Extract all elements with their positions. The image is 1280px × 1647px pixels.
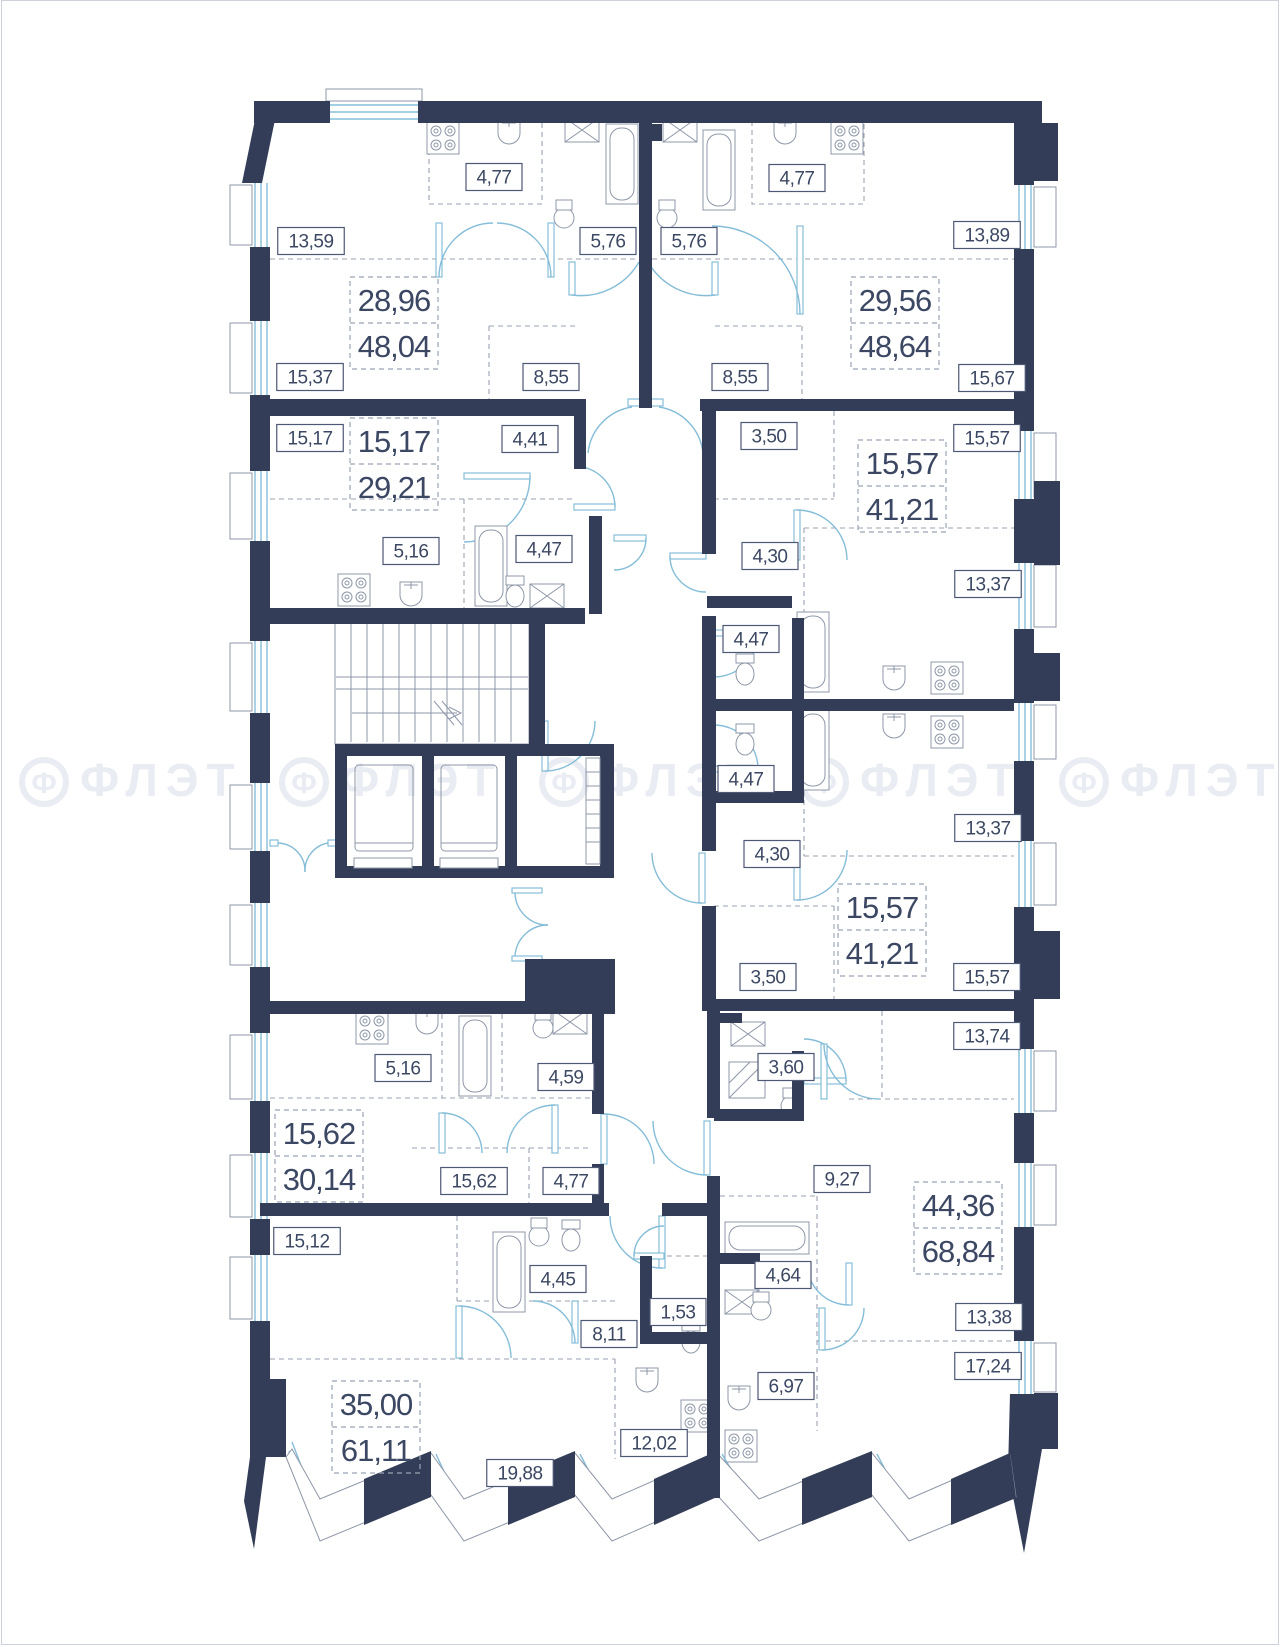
bathtub-icon	[703, 130, 735, 210]
room-area-label: 15,17	[277, 425, 344, 452]
room-area-value: 3,50	[751, 968, 786, 989]
room-area-value: 6,97	[769, 1377, 804, 1398]
window-sill	[1034, 1343, 1056, 1392]
room-area-label: 13,38	[956, 1304, 1023, 1331]
room-area-value: 8,55	[723, 368, 758, 389]
apartment-total-area: 41,21	[846, 936, 919, 971]
watermark-text: ФЛЭТ	[1120, 754, 1280, 806]
apartment-living-area: 35,00	[340, 1387, 413, 1422]
room-area-value: 4,77	[554, 1172, 589, 1193]
room-area-label: 9,27	[814, 1166, 870, 1193]
apartment-total-area: 48,04	[358, 329, 431, 364]
room-area-value: 8,11	[592, 1325, 626, 1346]
window-sill	[1034, 1165, 1056, 1225]
room-area-label: 15,62	[441, 1168, 508, 1195]
room-area-label: 4,77	[543, 1168, 599, 1195]
room-area-value: 13,74	[964, 1027, 1010, 1048]
apartment-label: 35,0061,11	[332, 1381, 420, 1473]
room-area-value: 5,76	[672, 232, 707, 253]
stove-icon	[725, 1430, 757, 1462]
window-sill	[230, 185, 252, 245]
room-area-label: 4,59	[538, 1064, 594, 1091]
room-area-value: 17,24	[965, 1357, 1011, 1378]
basin-icon	[529, 1218, 549, 1246]
bathtub-icon	[459, 1016, 491, 1096]
sink-icon	[636, 1368, 658, 1392]
bathtub-icon	[606, 124, 638, 204]
room-area-value: 4,64	[766, 1266, 802, 1287]
apartment-label: 15,5741,21	[858, 440, 946, 532]
room-area-label: 4,77	[466, 164, 522, 191]
room-area-value: 13,38	[966, 1308, 1011, 1329]
floor-plan-drawing: ФФЛЭТФФЛЭТФФЛЭТФФЛЭТФФЛЭТ	[2, 1, 1280, 1646]
room-area-label: 13,37	[955, 571, 1022, 598]
room-area-label: 3,50	[740, 964, 796, 991]
room-area-label: 5,76	[661, 228, 717, 255]
window-sill	[1034, 565, 1056, 627]
room-area-label: 8,55	[712, 364, 768, 391]
room-area-label: 8,11	[581, 1321, 637, 1348]
room-area-value: 4,30	[753, 547, 788, 568]
sink-icon	[728, 1386, 750, 1410]
room-area-value: 3,60	[769, 1058, 804, 1079]
room-area-value: 4,59	[549, 1068, 584, 1089]
toilet-icon	[736, 654, 754, 685]
stove-icon	[931, 716, 963, 748]
apartment-living-area: 15,57	[846, 890, 919, 925]
window-sill	[326, 89, 422, 101]
stove-icon	[427, 122, 459, 154]
window-sill	[230, 323, 252, 393]
watermark: ФФЛЭТ	[282, 754, 503, 806]
room-area-value: 15,17	[287, 429, 332, 450]
apartment-label: 15,1729,21	[350, 418, 438, 510]
room-area-label: 4,47	[718, 766, 774, 793]
room-area-label: 15,67	[959, 365, 1026, 392]
service-ladder	[586, 758, 600, 864]
room-area-value: 13,89	[964, 226, 1009, 247]
room-area-label: 4,77	[769, 165, 825, 192]
watermark-logo-letter: Ф	[291, 767, 317, 800]
watermark-text: ФЛЭТ	[80, 754, 243, 806]
stove-icon	[356, 1012, 388, 1044]
room-area-label: 4,47	[516, 536, 572, 563]
stove-icon	[831, 122, 863, 154]
room-area-label: 5,76	[580, 228, 636, 255]
room-area-value: 4,30	[755, 845, 790, 866]
watermark-logo-letter: Ф	[551, 767, 577, 800]
room-area-value: 15,57	[964, 968, 1009, 989]
apartment-living-area: 15,62	[283, 1116, 356, 1151]
apartment-living-area: 15,17	[358, 424, 431, 459]
room-area-value: 4,45	[541, 1270, 576, 1291]
apartment-living-area: 44,36	[922, 1188, 995, 1223]
window-sill	[230, 1155, 252, 1217]
room-area-value: 4,47	[527, 540, 562, 561]
apartment-total-area: 30,14	[283, 1162, 356, 1197]
room-area-value: 4,77	[780, 169, 815, 190]
room-area-value: 15,57	[964, 429, 1009, 450]
sink-icon	[883, 714, 905, 738]
room-area-label: 3,60	[758, 1054, 814, 1081]
room-area-label: 15,37	[277, 364, 344, 391]
toilet-icon	[506, 576, 524, 607]
room-area-label: 8,55	[523, 364, 579, 391]
sink-icon	[498, 120, 520, 144]
toilet-icon	[562, 1220, 580, 1251]
bathtub-icon	[493, 1232, 525, 1312]
room-area-value: 15,62	[451, 1172, 496, 1193]
room-area-value: 12,02	[631, 1434, 676, 1455]
watermark-text: ФЛЭТ	[860, 754, 1023, 806]
apartment-living-area: 15,57	[866, 446, 939, 481]
apartment-living-area: 28,96	[358, 283, 431, 318]
window-sill	[230, 473, 252, 539]
watermark: ФФЛЭТ	[22, 754, 243, 806]
sink-icon	[883, 666, 905, 690]
room-area-value: 5,16	[394, 542, 429, 563]
bathtub-icon	[475, 526, 507, 606]
room-area-value: 4,77	[477, 168, 512, 189]
basin-icon	[554, 200, 574, 228]
room-area-value: 4,47	[734, 630, 769, 651]
toilet-icon	[736, 724, 754, 755]
room-area-value: 13,37	[965, 819, 1010, 840]
watermark-text: ФЛЭТ	[340, 754, 503, 806]
room-area-label: 15,57	[954, 964, 1021, 991]
room-area-value: 8,55	[534, 368, 569, 389]
watermark: ФФЛЭТ	[1062, 754, 1280, 806]
room-area-label: 6,97	[758, 1373, 814, 1400]
window-sill	[230, 643, 252, 711]
basin-icon	[657, 200, 677, 228]
window-sill	[1034, 1051, 1056, 1111]
window-sill	[1034, 843, 1056, 905]
sink-icon	[400, 582, 422, 606]
watermark-logo-letter: Ф	[1071, 767, 1097, 800]
room-area-value: 4,47	[729, 770, 764, 791]
apartment-label: 15,5741,21	[838, 884, 926, 976]
room-area-value: 15,67	[969, 369, 1014, 390]
room-area-label: 13,59	[278, 228, 345, 255]
room-area-label: 13,37	[955, 815, 1022, 842]
room-area-label: 12,02	[621, 1430, 688, 1457]
room-area-label: 13,74	[954, 1023, 1021, 1050]
room-area-label: 4,30	[742, 543, 798, 570]
room-area-label: 19,88	[487, 1460, 554, 1487]
apartment-total-area: 29,21	[358, 470, 431, 505]
room-area-label: 13,89	[954, 222, 1021, 249]
window-sill	[230, 1035, 252, 1099]
apartment-label: 44,3668,84	[914, 1182, 1002, 1274]
apartment-label: 15,6230,14	[275, 1110, 363, 1202]
window-sill	[1034, 187, 1056, 247]
watermark: ФФЛЭТ	[802, 754, 1023, 806]
room-area-value: 3,50	[752, 427, 787, 448]
stove-icon	[931, 662, 963, 694]
room-area-label: 5,16	[383, 538, 439, 565]
apartment-total-area: 48,64	[859, 329, 932, 364]
apartment-label: 29,5648,64	[851, 277, 939, 369]
room-area-value: 5,76	[591, 232, 626, 253]
room-area-label: 4,64	[755, 1262, 811, 1289]
floor-plan-page: ФФЛЭТФФЛЭТФФЛЭТФФЛЭТФФЛЭТ	[1, 0, 1279, 1645]
elevator-door	[440, 858, 498, 868]
room-area-label: 4,30	[744, 841, 800, 868]
room-area-label: 3,50	[741, 423, 797, 450]
room-area-label: 4,47	[723, 626, 779, 653]
elevator-door	[354, 858, 412, 868]
window-sill	[1034, 705, 1056, 759]
room-area-value: 4,41	[513, 430, 548, 451]
watermark-logo-letter: Ф	[31, 767, 57, 800]
washing-machine-icon	[731, 1022, 765, 1046]
room-area-value: 9,27	[825, 1170, 860, 1191]
staircase	[335, 618, 529, 744]
room-area-value: 19,88	[497, 1464, 542, 1485]
apartment-label: 28,9648,04	[350, 277, 438, 369]
wall-layer	[242, 101, 1060, 1553]
sink-icon	[774, 120, 796, 144]
basin-icon	[751, 1292, 771, 1320]
room-area-value: 13,37	[965, 575, 1010, 596]
room-area-label: 5,16	[375, 1055, 431, 1082]
room-area-value: 15,12	[284, 1232, 329, 1253]
room-area-label: 15,57	[954, 425, 1021, 452]
room-area-value: 1,53	[661, 1303, 696, 1324]
room-area-value: 15,37	[287, 368, 332, 389]
room-area-label: 4,45	[530, 1266, 586, 1293]
room-area-label: 15,12	[274, 1228, 341, 1255]
room-area-value: 13,59	[288, 232, 333, 253]
apartment-total-area: 41,21	[866, 492, 939, 527]
stove-icon	[338, 574, 370, 606]
watermark-layer: ФФЛЭТФФЛЭТФФЛЭТФФЛЭТФФЛЭТ	[22, 754, 1280, 806]
room-area-label: 1,53	[650, 1299, 706, 1326]
room-area-value: 5,16	[386, 1059, 421, 1080]
room-area-label: 17,24	[955, 1353, 1022, 1380]
apartment-living-area: 29,56	[859, 283, 932, 318]
washing-machine-icon	[530, 584, 564, 608]
room-area-label: 4,41	[502, 426, 558, 453]
apartment-total-area: 68,84	[922, 1234, 995, 1269]
apartment-total-area: 61,11	[341, 1433, 411, 1468]
basin-icon	[533, 1010, 553, 1038]
window-sill	[230, 785, 252, 849]
bathtub-icon	[725, 1222, 809, 1254]
window-sill	[230, 1257, 252, 1319]
window-sill	[230, 905, 252, 965]
